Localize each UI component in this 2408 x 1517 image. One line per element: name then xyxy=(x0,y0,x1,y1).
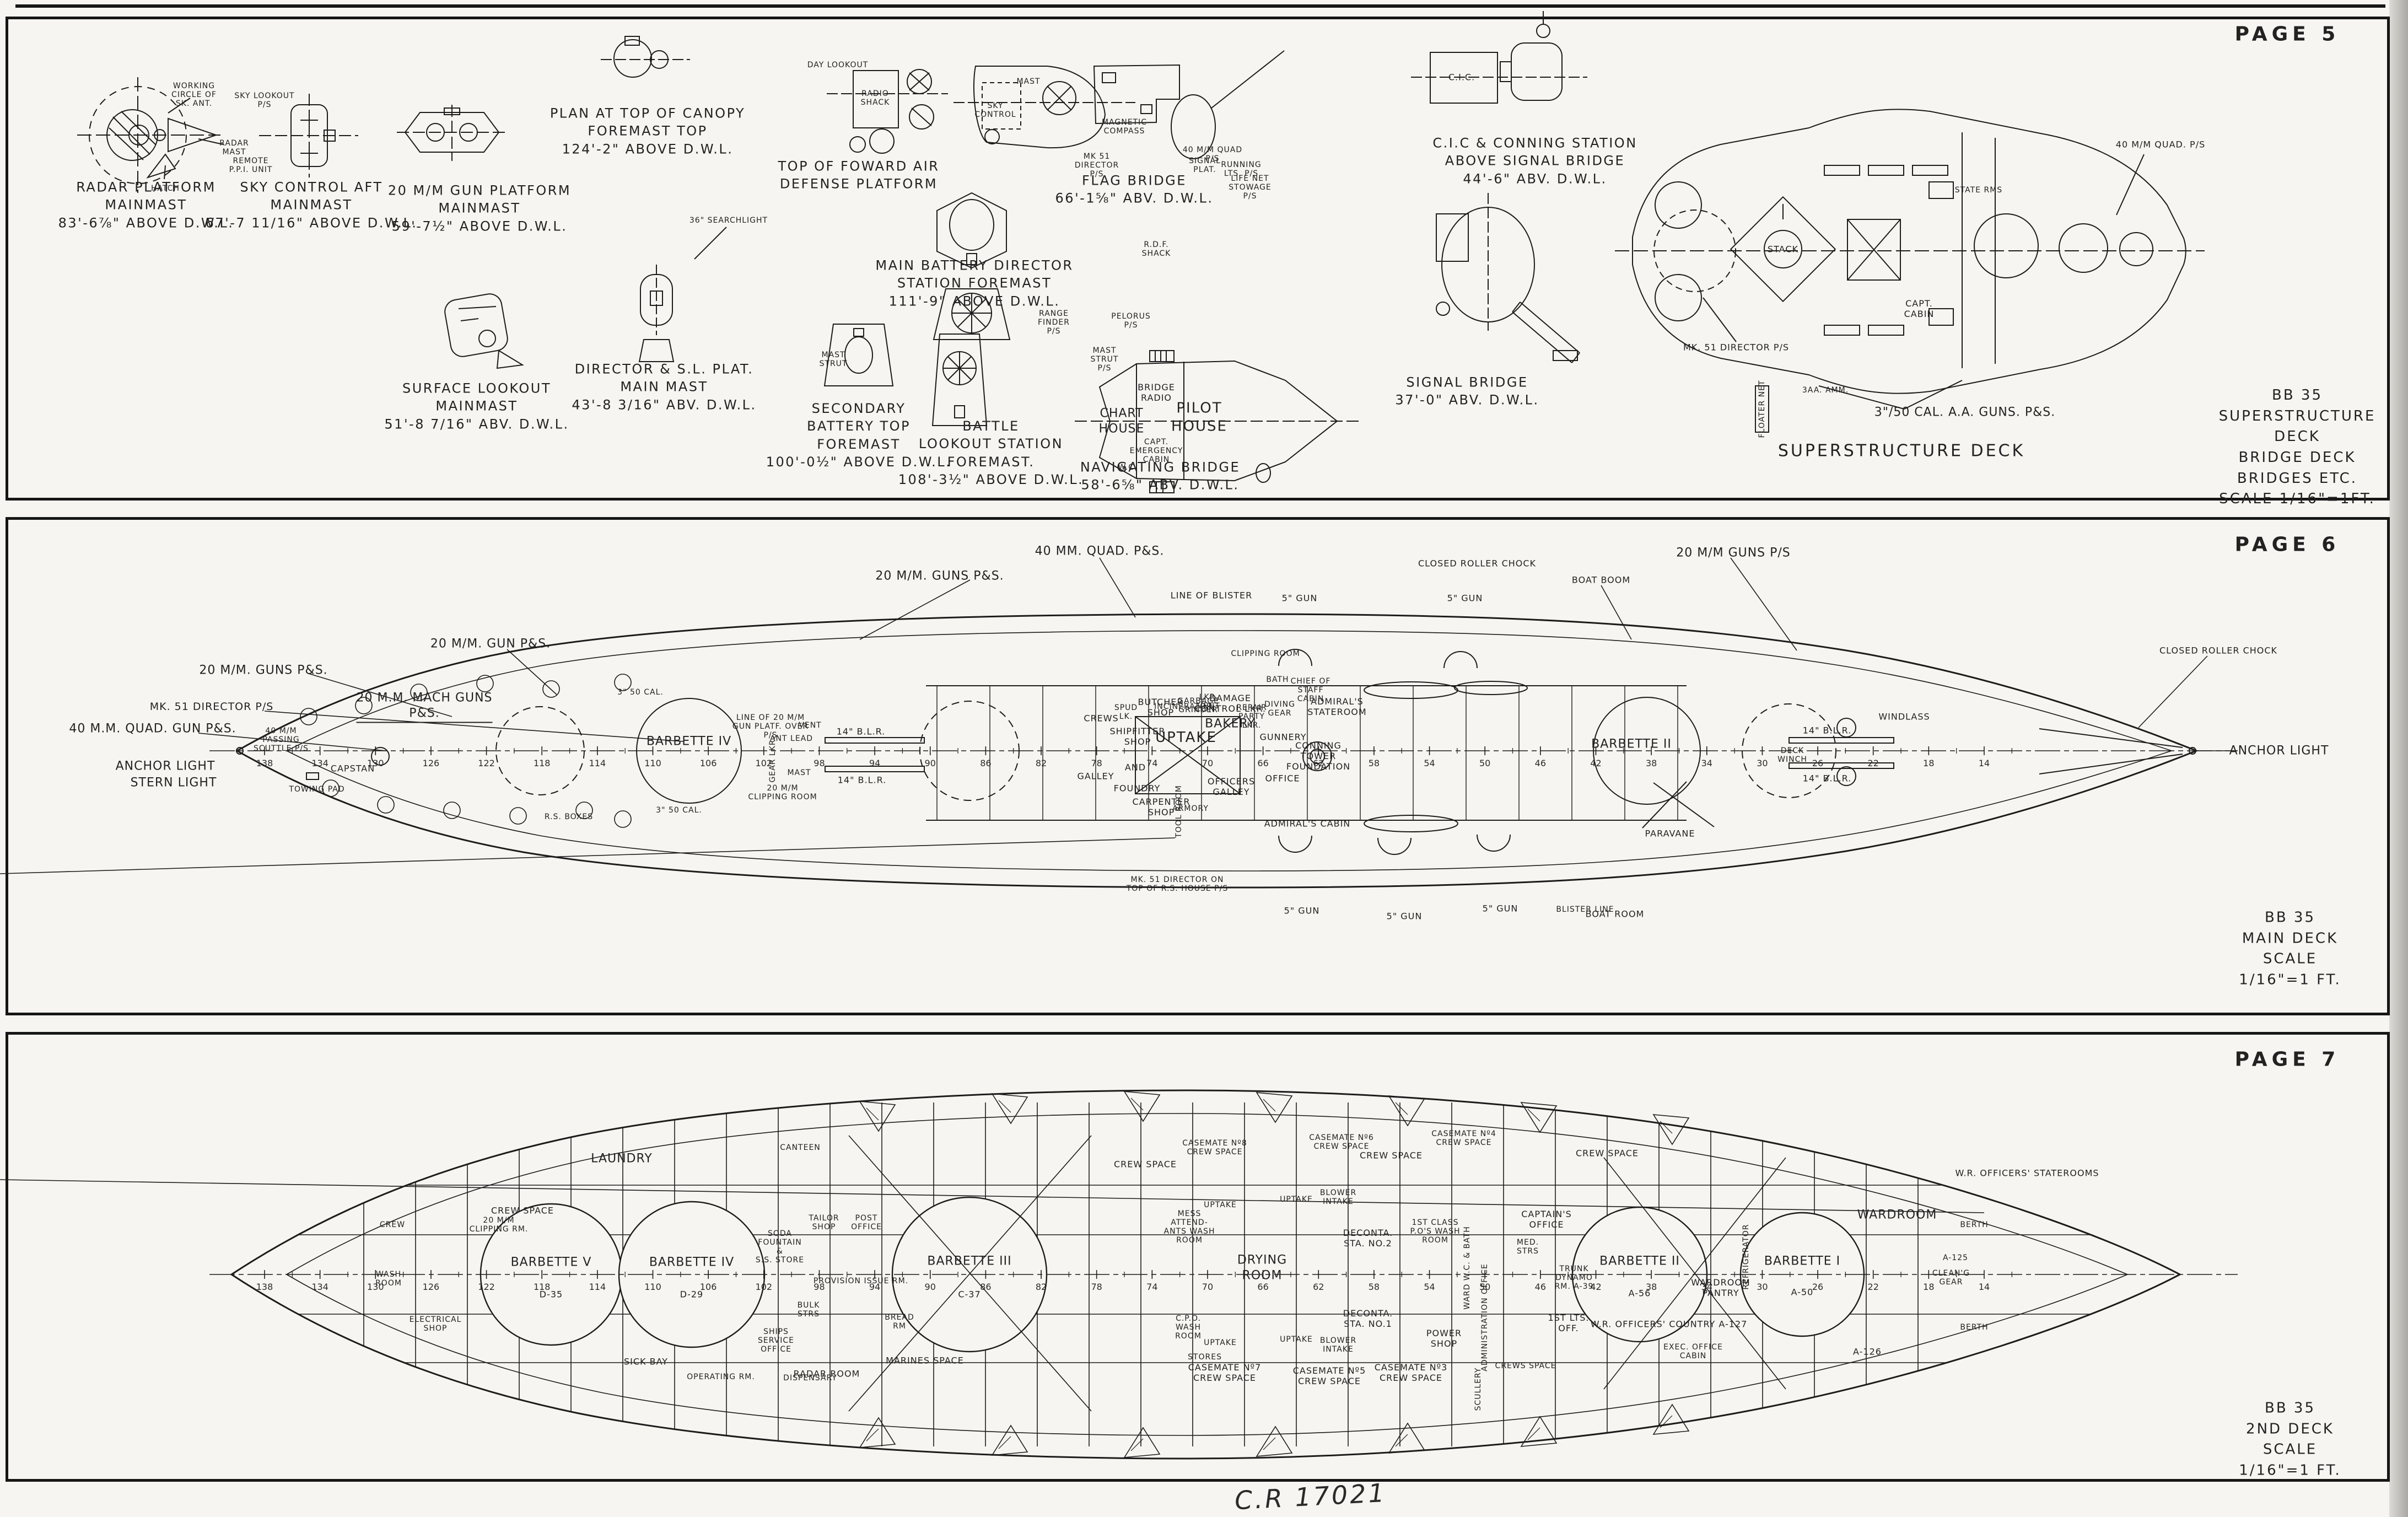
p7-uptake-b: UPTAKE xyxy=(1280,1195,1313,1204)
p6-40mm-quad: 40 MM. QUAD. P&S. xyxy=(1035,544,1165,559)
note-rdf-shack: R.D.F. SHACK xyxy=(1142,240,1171,258)
p6-office: OFFICE xyxy=(1265,773,1300,783)
p6-3in50-b: 3" 50 CAL. xyxy=(656,806,702,815)
svg-text:126: 126 xyxy=(423,1282,440,1292)
caption-main-battery-director: MAIN BATTERY DIRECTOR STATION FOREMAST 1… xyxy=(875,256,1073,310)
svg-text:66: 66 xyxy=(1257,1282,1268,1292)
note-pelorus: PELORUS P/S xyxy=(1111,312,1150,330)
note-chart-house: CHART HOUSE xyxy=(1099,406,1145,437)
note-mast-strut: MAST STRUT xyxy=(820,351,848,368)
svg-text:58: 58 xyxy=(1369,1282,1380,1292)
svg-text:14: 14 xyxy=(1979,1282,1990,1292)
note-remote-ppi: REMOTE P.P.I. UNIT xyxy=(229,157,273,174)
svg-text:134: 134 xyxy=(311,1282,328,1292)
p6-deck-winch: DECK WINCH xyxy=(1777,746,1807,764)
svg-text:62: 62 xyxy=(1313,1282,1324,1292)
p6-clipping-room-bot: 20 M/M CLIPPING ROOM xyxy=(748,784,817,801)
p7-radar-room: RADAR ROOM xyxy=(794,1368,860,1379)
p7-casemate-3: CASEMATE Nº3 CREW SPACE xyxy=(1375,1362,1448,1383)
p7-casemate-7: CASEMATE Nº7 CREW SPACE xyxy=(1188,1362,1262,1383)
p6-20mm-guns-top: 20 M/M. GUNS P&S. xyxy=(875,568,1004,584)
page6-title-block: BB 35MAIN DECKSCALE 1/16"=1 FT. xyxy=(2231,908,2349,991)
note-pilot-house: PILOT HOUSE xyxy=(1171,400,1227,435)
p6-foundry: FOUNDRY xyxy=(1114,783,1161,793)
p7-mess-attendants: MESS ATTEND- ANTS WASH ROOM xyxy=(1163,1209,1215,1245)
svg-text:54: 54 xyxy=(1424,1282,1435,1292)
p7-uptake-c: UPTAKE xyxy=(1204,1338,1237,1347)
blueprint-sheet: 1381341301261221181141101061029894908682… xyxy=(0,0,2408,1517)
p7-berth-b: BERTH xyxy=(1960,1323,1988,1332)
note-3in50-guns: 3"/50 CAL. A.A. GUNS. P&S. xyxy=(1874,405,2055,420)
svg-text:98: 98 xyxy=(814,758,825,768)
p7-casemate-5: CASEMATE Nº5 CREW SPACE xyxy=(1293,1365,1366,1386)
page7-label: PAGE 7 xyxy=(2235,1047,2340,1072)
p7-uptake-d: UPTAKE xyxy=(1280,1335,1313,1344)
svg-text:122: 122 xyxy=(478,758,495,768)
p6-boat-boom: BOAT BOOM xyxy=(1572,574,1630,585)
p7-marines-space: MARINES SPACE xyxy=(886,1355,964,1365)
p7-a126: A-126 xyxy=(1853,1346,1882,1357)
svg-text:46: 46 xyxy=(1535,1282,1546,1292)
svg-text:138: 138 xyxy=(256,758,273,768)
note-wc: W.C. xyxy=(1118,463,1138,472)
p7-casemate-4: CASEMATE Nº4 CREW SPACE xyxy=(1431,1129,1496,1147)
page5-label: PAGE 5 xyxy=(2235,22,2340,47)
p7-1st-lts: 1ST LTS. OFF. xyxy=(1548,1312,1590,1333)
caption-top-fwd-air-defense: TOP OF FOWARD AIR DEFENSE PLATFORM xyxy=(778,158,940,193)
svg-text:26: 26 xyxy=(1812,758,1823,768)
svg-text:74: 74 xyxy=(1146,1282,1157,1292)
svg-text:50: 50 xyxy=(1479,758,1490,768)
svg-text:94: 94 xyxy=(869,758,880,768)
svg-text:14: 14 xyxy=(1979,758,1990,768)
p7-barbette-iii: BARBETTE III xyxy=(927,1254,1011,1269)
p7-blower-intake-a: BLOWER INTAKE xyxy=(1320,1188,1356,1206)
p7-wr-staterooms: W.R. OFFICERS' STATEROOMS xyxy=(1955,1168,2099,1178)
p7-barbette-v-no: D-35 xyxy=(540,1289,563,1299)
p7-crew-stern: CREW xyxy=(380,1220,405,1229)
svg-text:22: 22 xyxy=(1868,1282,1879,1292)
p7-crew-space-b: CREW SPACE xyxy=(1114,1159,1177,1169)
p7-cpo-wash: C.P.O. WASH ROOM xyxy=(1175,1314,1202,1341)
p6-anchor-light-stern: ANCHOR LIGHT xyxy=(116,758,216,774)
page7-second-deck-drawing: 1381341301261221181141101061029894908682… xyxy=(0,1090,2238,1459)
p7-cleaning-gear: CLEAN'G GEAR xyxy=(1932,1269,1970,1287)
note-radio-shack: RADIO SHACK xyxy=(861,89,890,107)
svg-text:78: 78 xyxy=(1091,1282,1102,1292)
caption-canopy-plan: PLAN AT TOP OF CANOPY FOREMAST TOP 124'-… xyxy=(550,104,745,158)
p7-1st-class-wash: 1ST CLASS P.O'S WASH ROOM xyxy=(1410,1218,1461,1245)
p7-captains-office: CAPTAIN'S OFFICE xyxy=(1521,1209,1571,1230)
svg-text:126: 126 xyxy=(423,758,440,768)
p7-ward-wc-bath: WARD W.C. & BATH xyxy=(1463,1226,1472,1310)
p7-deconta-2: DECONTA. STA. NO.2 xyxy=(1343,1228,1393,1249)
note-40mm-quad-right: 40 M/M QUAD. P/S xyxy=(2116,139,2205,149)
p6-galley: GALLEY xyxy=(1077,771,1114,781)
p7-barbette-iii-no: C-37 xyxy=(958,1289,981,1299)
svg-text:114: 114 xyxy=(589,758,606,768)
p6-stern-light: STERN LIGHT xyxy=(131,775,217,790)
page6-label: PAGE 6 xyxy=(2235,532,2340,557)
p6-5in-gun-5: 5" GUN xyxy=(1483,903,1518,913)
p6-14blr-1: 14" B.L.R. xyxy=(837,726,886,736)
svg-text:38: 38 xyxy=(1646,758,1657,768)
p7-sick-bay: SICK BAY xyxy=(624,1356,668,1367)
p6-chief-staff-cabin: CHIEF OF STAFF CABIN xyxy=(1291,677,1331,703)
svg-text:134: 134 xyxy=(311,758,328,768)
p6-40mm-quad-gun: 40 M.M. QUAD. GUN P&S. xyxy=(69,721,236,736)
p6-diving-gear: DIVING GEAR xyxy=(1264,700,1295,718)
p7-wr-country: W.R. OFFICERS' COUNTRY A-127 xyxy=(1591,1319,1748,1329)
p6-14blr-4: 14" B.L.R. xyxy=(1803,773,1852,783)
p6-5in-gun-1: 5" GUN xyxy=(1282,593,1318,603)
svg-text:42: 42 xyxy=(1590,758,1601,768)
p6-bath: BATH xyxy=(1266,675,1289,684)
p6-20mm-mach-guns: 20 M.M. MACH GUNS P&S. xyxy=(356,691,492,723)
p6-paravane: PARAVANE xyxy=(1645,828,1695,838)
svg-text:90: 90 xyxy=(925,1282,936,1292)
p7-barbette-i: BARBETTE I xyxy=(1764,1254,1840,1269)
svg-text:54: 54 xyxy=(1424,758,1435,768)
p7-casemate-8: CASEMATE Nº8 CREW SPACE xyxy=(1182,1139,1247,1156)
p7-crew-space-d: CREW SPACE xyxy=(1576,1148,1639,1158)
note-radar-mast: RADAR MAST xyxy=(219,139,249,157)
p7-canteen: CANTEEN xyxy=(780,1143,821,1152)
p6-passing-scuttle: 40 M/M PASSING SCUTTLE P/S xyxy=(254,727,309,753)
p6-mk51-director: MK. 51 DIRECTOR P/S xyxy=(150,701,274,714)
svg-text:106: 106 xyxy=(700,758,717,768)
caption-signal-bridge: SIGNAL BRIDGE 37'-0" ABV. D.W.L. xyxy=(1395,374,1539,410)
p7-refrigerator: REFRIGERATOR xyxy=(1742,1224,1750,1289)
p6-gear-lkr: GEAR LKR. xyxy=(768,736,777,782)
p6-line-of-blister: LINE OF BLISTER xyxy=(1171,590,1252,600)
p6-windlass: WINDLASS xyxy=(1878,711,1930,722)
p7-barbette-v: BARBETTE V xyxy=(511,1255,592,1270)
p6-20mm-guns-left: 20 M/M. GUNS P&S. xyxy=(199,663,327,678)
p6-5in-gun-4: 5" GUN xyxy=(1387,911,1423,921)
note-state-rms: STATE RMS xyxy=(1955,186,2002,195)
note-stack: STACK xyxy=(1768,244,1798,254)
page6-main-deck-drawing: 1381341301261221181141101061029894908682… xyxy=(0,558,2238,887)
p6-mk51-rs-house: MK. 51 DIRECTOR ON TOP OF R.S. HOUSE P/S xyxy=(1127,875,1228,893)
note-bridge-radio: BRIDGE RADIO xyxy=(1138,382,1175,403)
p6-roller-chock-top: CLOSED ROLLER CHOCK xyxy=(1418,558,1536,568)
p7-scullery: SCULLERY xyxy=(1474,1368,1483,1411)
p7-a125: A-125 xyxy=(1943,1254,1968,1262)
p7-crew-space-c: CREW SPACE xyxy=(1360,1150,1423,1160)
svg-text:22: 22 xyxy=(1868,758,1879,768)
note-3aa-amm: 3AA. AMM. xyxy=(1802,386,1849,395)
p6-uptake: UPTAKE xyxy=(1155,729,1217,747)
svg-text:102: 102 xyxy=(756,1282,773,1292)
p7-barbette-i-no: A-50 xyxy=(1791,1287,1814,1297)
p7-provision-issue: PROVISION ISSUE RM. xyxy=(814,1277,908,1285)
note-life-net: LIFE NET STOWAGE P/S xyxy=(1229,174,1272,201)
note-capt-cabin: CAPT. CABIN xyxy=(1904,298,1935,319)
note-hatch: HATCH xyxy=(151,184,180,193)
note-range-finder: RANGE FINDER P/S xyxy=(1038,309,1070,336)
note-sky-control: SKY CONTROL xyxy=(974,101,1016,119)
p7-laundry: LAUNDRY xyxy=(591,1151,653,1166)
caption-superstructure-deck: SUPERSTRUCTURE DECK xyxy=(1778,440,2025,461)
note-mast: MAST xyxy=(1016,77,1040,86)
p7-deconta-1: DECONTA. STA. NO.1 xyxy=(1343,1308,1393,1329)
p6-crews: CREWS xyxy=(1084,713,1118,723)
p7-operating-rm: OPERATING RM. xyxy=(687,1373,755,1381)
p7-barbette-ii-no: A-56 xyxy=(1629,1288,1651,1298)
p6-capstan: CAPSTAN xyxy=(331,763,375,773)
note-capt-emergency-cabin: CAPT. EMERGENCY CABIN xyxy=(1130,438,1183,464)
p7-bread-rm: BREAD RM xyxy=(885,1313,914,1331)
p7-administration: ADMINISTRATION OFFICE xyxy=(1480,1263,1489,1371)
caption-cic-conning: C.I.C & CONNING STATION ABOVE SIGNAL BRI… xyxy=(1432,134,1637,187)
note-sky-lookout: SKY LOOKOUT P/S xyxy=(234,92,294,109)
p7-casemate-6: CASEMATE Nº6 CREW SPACE xyxy=(1309,1133,1373,1151)
note-cic-box: C.I.C. xyxy=(1448,72,1475,82)
p7-barbette-ii: BARBETTE II xyxy=(1599,1254,1680,1269)
p7-crews-space: CREWS SPACE xyxy=(1495,1362,1556,1370)
p6-conning-foundation: CONNING TOWER FOUNDATION xyxy=(1286,740,1350,772)
p6-vent: VENT xyxy=(799,721,821,730)
p6-14blr-3: 14" B.L.R. xyxy=(1803,725,1852,735)
svg-text:118: 118 xyxy=(534,758,551,768)
caption-director-sl-plat: DIRECTOR & S.L. PLAT. MAIN MAST 43'-8 3/… xyxy=(572,360,756,413)
p6-admirals-cabin: ADMIRAL'S CABIN xyxy=(1264,818,1351,829)
p7-tailor-shop: TAILOR SHOP xyxy=(809,1214,839,1231)
svg-text:90: 90 xyxy=(925,758,936,768)
p6-ant-lead: ANT LEAD xyxy=(770,734,813,743)
p6-roller-chock-right: CLOSED ROLLER CHOCK xyxy=(2159,645,2277,655)
p7-soda-fountain: SODA FOUNTAIN & S.S. STORE xyxy=(756,1229,804,1265)
p6-anchor-light-bow: ANCHOR LIGHT xyxy=(2229,743,2329,758)
p7-exec-office: EXEC. OFFICE CABIN xyxy=(1663,1343,1723,1360)
caption-20mm-gun-platform: 20 M/M GUN PLATFORM MAINMAST 59'-7½" ABO… xyxy=(388,181,571,235)
note-mk51-director: MK 51 DIRECTOR P/S xyxy=(1075,152,1119,179)
p7-stores: STORES xyxy=(1188,1353,1222,1362)
p6-barbette-iv: BARBETTE IV xyxy=(647,734,731,749)
p7-trunk-dynamo: TRUNK DYNAMO RM. A-39 xyxy=(1555,1265,1594,1291)
note-day-lookout: DAY LOOKOUT xyxy=(807,61,869,69)
p6-blister-line: BLISTER LINE xyxy=(1556,905,1614,914)
svg-text:110: 110 xyxy=(644,1282,661,1292)
p6-3in50-a: 3" 50 CAL. xyxy=(617,688,664,697)
p7-med-strs: MED. STRS xyxy=(1517,1238,1539,1256)
svg-text:46: 46 xyxy=(1535,758,1546,768)
svg-text:26: 26 xyxy=(1812,1282,1823,1292)
p7-bulk-strs: BULK STRS xyxy=(798,1301,820,1319)
svg-text:30: 30 xyxy=(1757,1282,1768,1292)
p7-wash-room-stern: WASH ROOM xyxy=(375,1270,402,1288)
svg-text:66: 66 xyxy=(1257,758,1268,768)
svg-text:82: 82 xyxy=(1036,1282,1047,1292)
p6-barbette-ii: BARBETTE II xyxy=(1591,736,1672,752)
note-36-searchlight: 36" SEARCHLIGHT xyxy=(689,216,768,225)
p6-officers-galley: OFFICERS GALLEY xyxy=(1208,776,1255,797)
svg-text:70: 70 xyxy=(1202,1282,1213,1292)
p6-towing-pad: TOWING PAD xyxy=(289,785,344,794)
svg-text:82: 82 xyxy=(1036,758,1047,768)
p7-uptake-a: UPTAKE xyxy=(1204,1201,1237,1209)
svg-text:70: 70 xyxy=(1202,758,1213,768)
p7-ships-service: SHIPS SERVICE OFFICE xyxy=(758,1327,794,1354)
svg-text:74: 74 xyxy=(1146,758,1157,768)
caption-surface-lookout: SURFACE LOOKOUT MAINMAST 51'-8 7/16" ABV… xyxy=(384,379,569,433)
page5-title-block: BB 35SUPERSTRUCTURE DECKBRIDGE DECK BRID… xyxy=(2219,385,2376,510)
p6-5in-gun-3: 5" GUN xyxy=(1284,905,1320,916)
p6-5in-gun-2: 5" GUN xyxy=(1447,593,1483,603)
svg-text:30: 30 xyxy=(1757,758,1768,768)
p7-barbette-iv-no: D-29 xyxy=(680,1289,703,1299)
p7-berth-a: BERTH xyxy=(1960,1220,1988,1229)
p7-clipping-rm: 20 M/M CLIPPING RM. xyxy=(470,1216,529,1234)
p7-post-office: POST OFFICE xyxy=(851,1214,882,1231)
note-floater-net: FLOATER NET xyxy=(1758,380,1766,438)
p7-power-shop: POWER SHOP xyxy=(1426,1328,1462,1349)
note-running-lights: RUNNING LTS. P/S xyxy=(1221,160,1261,178)
caption-sky-control-aft: SKY CONTROL AFT MAINMAST 67'-7 11/16" AB… xyxy=(206,178,418,232)
p7-electrical-shop: ELECTRICAL SHOP xyxy=(410,1315,462,1333)
note-mast-strut-ps: MAST STRUT P/S xyxy=(1091,346,1119,373)
p6-and: AND xyxy=(1125,762,1146,772)
note-mk51-director-right: MK. 51 DIRECTOR P/S xyxy=(1683,342,1789,352)
p6-armory: ARMORY xyxy=(1172,804,1209,813)
note-magnetic-compass: MAGNETIC COMPASS xyxy=(1102,118,1147,136)
svg-text:58: 58 xyxy=(1369,758,1380,768)
p7-barbette-iv: BARBETTE IV xyxy=(649,1255,734,1270)
page7-title-block: BB 352ND DECKSCALE 1/16"=1 FT. xyxy=(2231,1398,2349,1482)
p6-20mm-gun: 20 M/M. GUN P&S. xyxy=(430,636,551,652)
p6-14blr-2: 14" B.L.R. xyxy=(838,774,887,785)
p7-drying-room: DRYING ROOM xyxy=(1237,1253,1287,1283)
p6-20mm-guns-bow: 20 M/M GUNS P/S xyxy=(1676,545,1791,561)
p7-crew-space-a: CREW SPACE xyxy=(491,1205,554,1215)
svg-text:122: 122 xyxy=(478,1282,495,1292)
p6-repair-party: REPAIR PARTY LKR. xyxy=(1236,703,1267,730)
svg-text:18: 18 xyxy=(1923,758,1934,768)
p7-blower-intake-b: BLOWER INTAKE xyxy=(1320,1336,1356,1354)
caption-battle-lookout: BATTLE LOOKOUT STATION FOREMAST. 108'-3½… xyxy=(898,417,1084,489)
p7-wardroom: WARDROOM xyxy=(1857,1207,1937,1223)
p6-mast: MAST xyxy=(787,768,811,777)
note-signal-plat: SIGNAL PLAT. xyxy=(1189,157,1221,174)
p6-clipping-room-top: CLIPPING ROOM xyxy=(1231,649,1300,658)
svg-text:34: 34 xyxy=(1701,758,1712,768)
note-working-circle: WORKING CIRCLE OF SK. ANT. xyxy=(171,82,217,108)
p6-spud-lk: SPUD LK. xyxy=(1114,703,1138,721)
svg-text:138: 138 xyxy=(256,1282,273,1292)
svg-text:110: 110 xyxy=(644,758,661,768)
svg-text:86: 86 xyxy=(980,1282,991,1292)
svg-text:114: 114 xyxy=(589,1282,606,1292)
svg-text:78: 78 xyxy=(1091,758,1102,768)
p6-rs-boxes: R.S. BOXES xyxy=(545,813,593,821)
